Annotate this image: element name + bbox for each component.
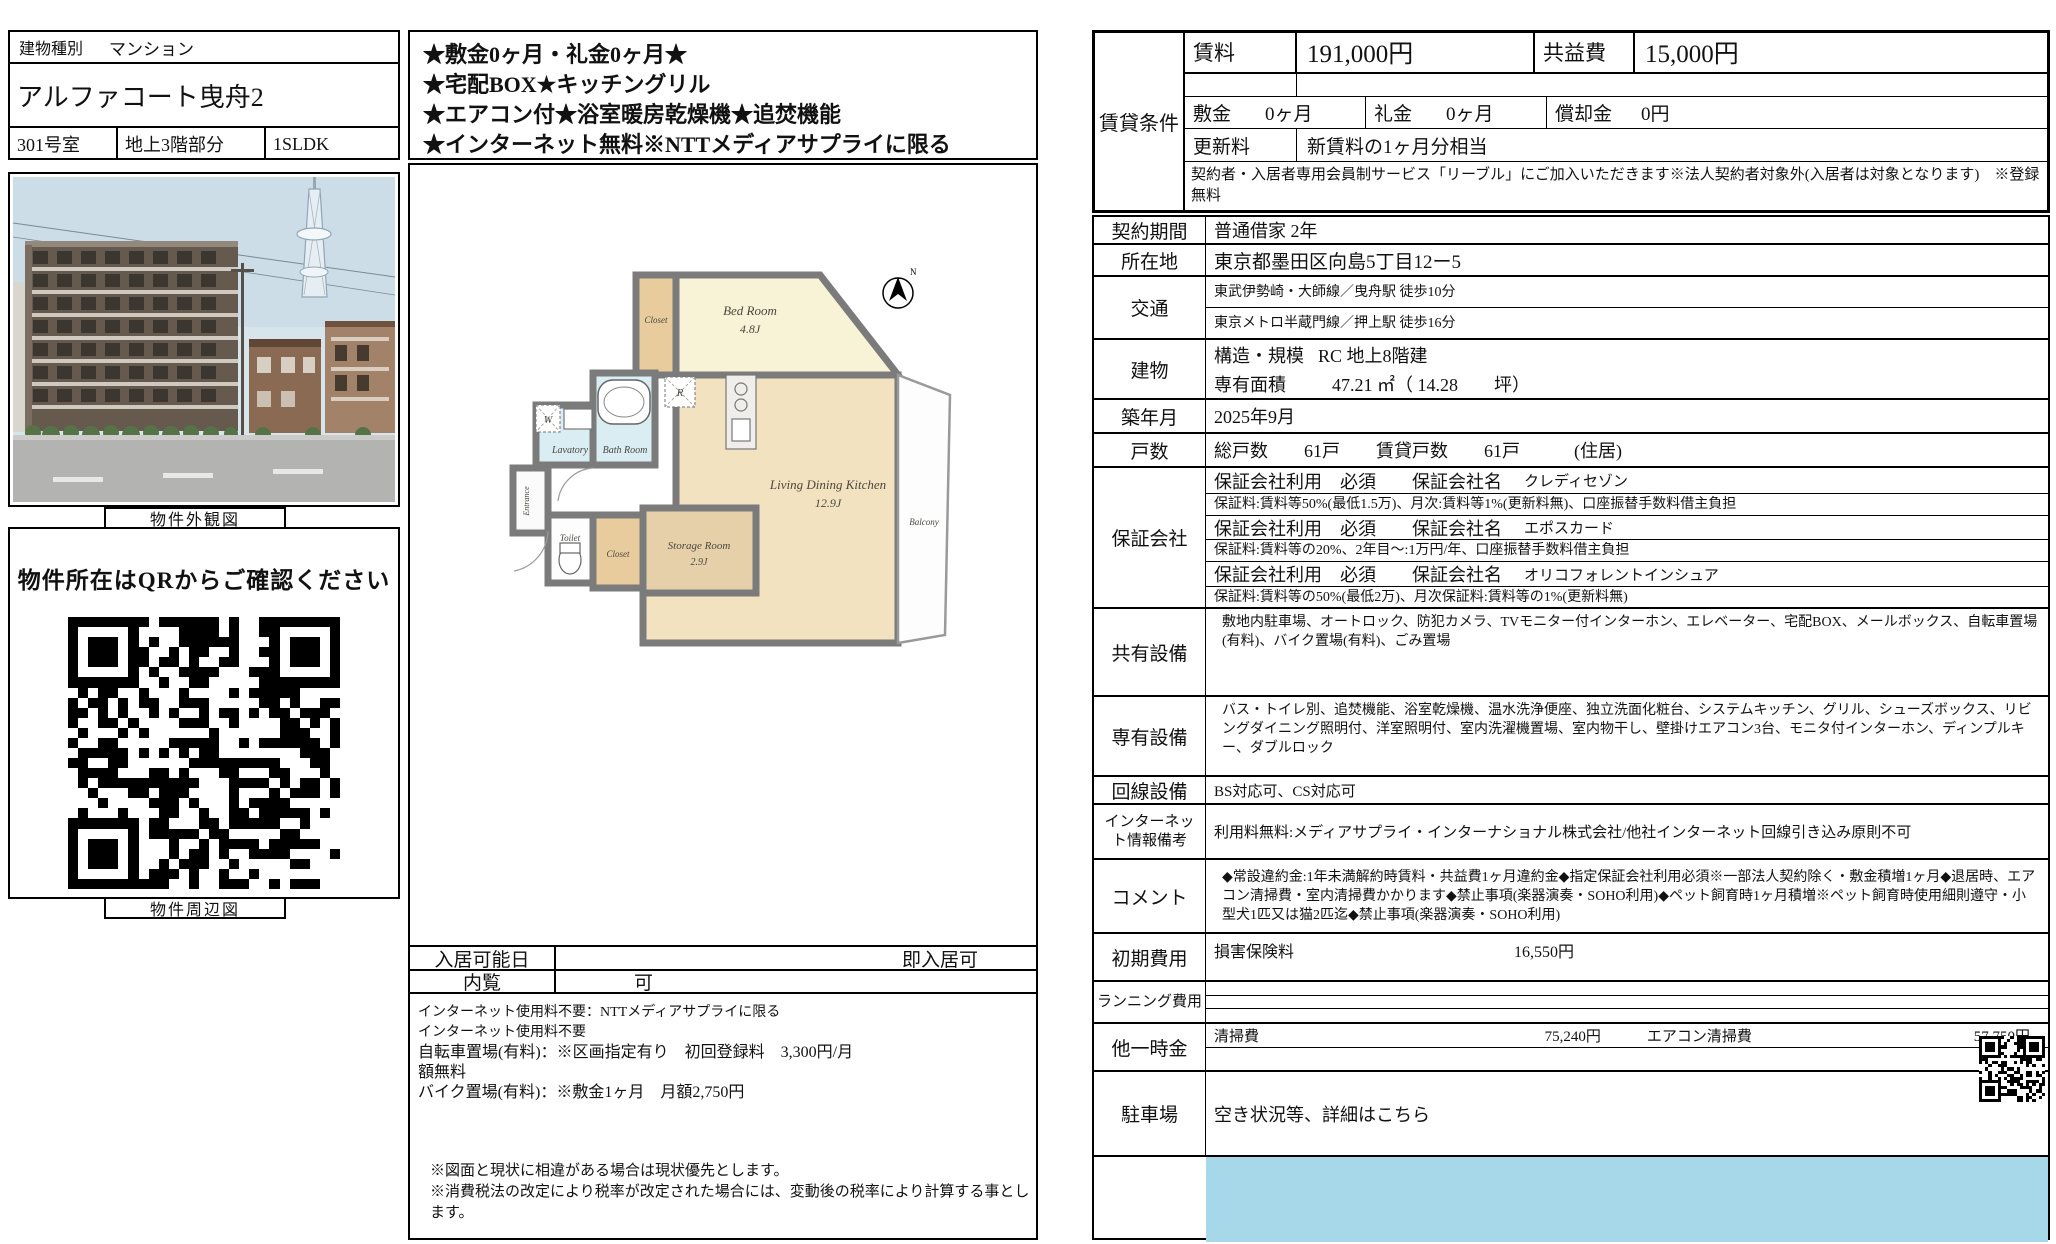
contract-label: 契約期間 — [1094, 217, 1206, 243]
closet1-label: Closet — [644, 315, 668, 325]
layout-type: 1SLDK — [266, 128, 398, 160]
bedroom-label: Bed Room — [723, 303, 777, 318]
initial-cost-item: 損害保険料 — [1214, 938, 1514, 962]
north-arrow-icon: N — [883, 267, 917, 308]
common-facilities-row: 共有設備 敷地内駐車場、オートロック、防犯カメラ、TVモニター付インターホン、エ… — [1094, 609, 2048, 697]
qr-map-box: 物件所在はQRからご確認ください — [8, 527, 400, 899]
internet-label: インターネット情報備考 — [1094, 805, 1206, 858]
move-in-label: 入居可能日 — [410, 947, 556, 969]
storage-size: 2.9J — [691, 557, 709, 568]
guarantor-row: 保証会社 保証会社利用 必須 保証会社名 クレディセゾン 保証料:賃料等50%(… — [1094, 468, 2048, 609]
room-number: 301号室 — [10, 128, 118, 160]
renewal-label: 更新料 — [1185, 129, 1297, 161]
exterior-photo-frame — [8, 172, 400, 507]
internet-row: インターネット情報備考 利用料無料:メディアサプライ・インターナショナル株式会社… — [1094, 805, 2048, 860]
initial-cost-row: 初期費用 損害保険料 16,550円 — [1094, 934, 2048, 982]
guarantor-detail: 保証料:賃料等の50%(最低2万)、月次保証料:賃料等の1%(更新料無) — [1206, 587, 2048, 607]
rent-conditions-box: 賃貸条件 賃料 191,000円 共益費 15,000円 敷金 0ヶ月 礼金 0… — [1092, 30, 2050, 213]
initial-cost-value: 16,550円 — [1514, 938, 1574, 962]
fridge-label: R — [676, 387, 684, 399]
key-money-label: 礼金 — [1374, 99, 1446, 126]
highlight-line: ★宅配BOX★キッチングリル — [423, 70, 1036, 100]
access-row: 交通 東武伊勢崎・大師線／曳舟駅 徒歩10分 東京メトロ半蔵門線／押上駅 徒歩1… — [1094, 277, 2048, 340]
units-value: 総戸数 61戸 賃貸戸数 61戸 (住居) — [1206, 434, 2048, 466]
other-cost-row: 他一時金 清掃費 75,240円 エアコン清掃費 57,750円 — [1094, 1024, 2048, 1072]
access-label: 交通 — [1094, 277, 1206, 338]
unit-info-row: 301号室 地上3階部分 1SLDK — [10, 128, 398, 160]
rent-row: 賃料 191,000円 共益費 15,000円 — [1185, 33, 2047, 74]
access-line: 東武伊勢崎・大師線／曳舟駅 徒歩10分 — [1206, 277, 2048, 308]
address-row: 所在地 東京都墨田区向島5丁目12ー5 — [1094, 245, 2048, 277]
deposit-value: 0ヶ月 — [1265, 99, 1313, 126]
building-row: 建物 構造・規模 RC 地上8階建 専有面積 47.21 ㎡（ 14.28 坪） — [1094, 340, 2048, 400]
building-type-value: マンション — [109, 35, 194, 60]
bottom-bar-label — [1094, 1157, 1206, 1242]
contract-value: 普通借家 2年 — [1206, 217, 2048, 243]
bathroom-label: Bath Room — [603, 445, 648, 456]
entrance-label: Entrance — [522, 486, 531, 517]
other-cost-item1: 清掃費 — [1214, 1025, 1259, 1046]
spacer-row — [1185, 74, 2047, 97]
parking-label: 駐車場 — [1094, 1072, 1206, 1155]
area-value: 47.21 ㎡（ 14.28 坪） — [1332, 371, 1530, 397]
rent-section-label: 賃貸条件 — [1095, 33, 1185, 210]
line-facilities-label: 回線設備 — [1094, 777, 1206, 803]
comment-label: コメント — [1094, 860, 1206, 932]
common-facilities-value: 敷地内駐車場、オートロック、防犯カメラ、TVモニター付インターホン、エレベーター… — [1214, 609, 2048, 651]
guarantor-detail: 保証料:賃料等50%(最低1.5万)、月次:賃料等1%(更新料無)、口座振替手数… — [1206, 494, 2048, 516]
viewing-label: 内覧 — [410, 971, 556, 992]
details-table: 契約期間 普通借家 2年 所在地 東京都墨田区向島5丁目12ー5 交通 東武伊勢… — [1092, 215, 2050, 1240]
closet2-label: Closet — [606, 549, 630, 559]
property-sheet: 建物種別 マンション アルファコート曳舟2 301号室 地上3階部分 1SLDK — [0, 0, 2056, 1244]
common-facilities-label: 共有設備 — [1094, 609, 1206, 695]
floorplan-box: N Closet Bed Room 4.8J W R Lavatory Bath… — [408, 163, 1038, 1240]
floorplan: N Closet Bed Room 4.8J W R Lavatory Bath… — [498, 263, 978, 703]
deposit-label: 敷金 — [1193, 99, 1265, 126]
deposit-row: 敷金 0ヶ月 礼金 0ヶ月 償却金 0円 — [1185, 97, 2047, 130]
other-cost-item2: エアコン清掃費 — [1647, 1025, 1752, 1046]
building-label: 建物 — [1094, 340, 1206, 398]
building-header: 建物種別 マンション アルファコート曳舟2 301号室 地上3階部分 1SLDK — [8, 30, 400, 160]
building-name: アルファコート曳舟2 — [10, 64, 398, 128]
balcony-label: Balcony — [909, 517, 939, 527]
photo-caption: 物件外観図 — [104, 507, 286, 529]
key-money-value: 0ヶ月 — [1446, 99, 1494, 126]
building-type-label: 建物種別 — [19, 35, 83, 59]
guarantor-head: 保証会社利用 必須 保証会社名 — [1214, 561, 1502, 587]
units-row: 戸数 総戸数 61戸 賃貸戸数 61戸 (住居) — [1094, 434, 2048, 468]
private-facilities-value: バス・トイレ別、追焚機能、浴室乾燥機、温水洗浄便座、独立洗面化粧台、システムキッ… — [1214, 697, 2048, 758]
guarantor-name: オリコフォレントインシュア — [1524, 564, 1719, 585]
balcony-outline — [898, 375, 950, 643]
access-line: 東京メトロ半蔵門線／押上駅 徒歩16分 — [1206, 308, 2048, 338]
guarantor-head: 保証会社利用 必須 保証会社名 — [1214, 515, 1502, 541]
guarantor-label: 保証会社 — [1094, 468, 1206, 607]
exterior-photo — [13, 177, 395, 502]
bedroom-size: 4.8J — [740, 322, 761, 336]
address-value: 東京都墨田区向島5丁目12ー5 — [1206, 245, 2048, 275]
private-facilities-label: 専有設備 — [1094, 697, 1206, 775]
private-facilities-row: 専有設備 バス・トイレ別、追焚機能、浴室乾燥機、温水洗浄便座、独立洗面化粧台、シ… — [1094, 697, 2048, 777]
renewal-row: 更新料 新賃料の1ヶ月分相当 — [1185, 129, 2047, 162]
footer-note-line: ※図面と現状に相違がある場合は現状優先とします。 — [430, 1161, 1036, 1182]
address-label: 所在地 — [1094, 245, 1206, 275]
viewing-row: 内覧 可 — [410, 969, 1036, 994]
units-label: 戸数 — [1094, 434, 1206, 466]
facility-notes: インターネット使用料不要：NTTメディアサプライに限る インターネット使用料不要… — [418, 1003, 1028, 1103]
running-cost-label: ランニング費用 — [1094, 982, 1206, 1022]
highlight-line: ★敷金0ヶ月・礼金0ヶ月★ — [423, 40, 1036, 70]
parking-value: 空き状況等、詳細はこちら — [1206, 1072, 2048, 1155]
rent-value: 191,000円 — [1297, 33, 1535, 72]
bottom-bar-row — [1094, 1157, 2048, 1242]
ldk-label: Living Dining Kitchen — [769, 477, 886, 492]
guarantor-name: クレディセゾン — [1524, 470, 1628, 491]
common-fee-value: 15,000円 — [1635, 33, 2047, 72]
line-facilities-row: 回線設備 BS対応可、CS対応可 — [1094, 777, 2048, 805]
highlight-line: ★インターネット無料※NTTメディアサプライに限る — [423, 130, 1036, 160]
map-qr-code — [68, 617, 340, 889]
built-label: 築年月 — [1094, 400, 1206, 432]
viewing-value: 可 — [556, 971, 1036, 992]
rent-label: 賃料 — [1185, 33, 1297, 72]
toilet-label: Toilet — [560, 533, 581, 543]
contract-row: 契約期間 普通借家 2年 — [1094, 217, 2048, 245]
initial-cost-label: 初期費用 — [1094, 934, 1206, 980]
comment-value: ◆常設違約金:1年未満解約時賃料・共益費1ヶ月違約金◆指定保証会社利用必須※一部… — [1214, 868, 2048, 925]
parking-row: 駐車場 空き状況等、詳細はこちら — [1094, 1072, 2048, 1157]
apartment-building — [25, 241, 238, 431]
note-line: 自転車置場(有料)：※区画指定有り 初回登録料 3,300円/月 — [418, 1043, 1028, 1063]
qr-heading: 物件所在はQRからご確認ください — [10, 561, 398, 595]
note-line: 額無料 — [418, 1063, 1028, 1083]
membership-note: 契約者・入居者専用会員制サービス「リーブル」にご加入いただきます※法人契約者対象… — [1185, 162, 2047, 210]
bottom-highlight-bar — [1206, 1157, 2048, 1242]
built-value: 2025年9月 — [1206, 400, 2048, 432]
internet-value: 利用料無料:メディアサプライ・インターナショナル株式会社/他社インターネット回線… — [1206, 805, 2048, 858]
running-cost-row: ランニング費用 — [1094, 982, 2048, 1024]
structure-label: 構造・規模 — [1214, 342, 1304, 368]
footer-note-line: ※消費税法の改定により税率が改定された場合には、変動後の税率により計算する事とし… — [430, 1182, 1036, 1224]
guarantor-detail: 保証料:賃料等の20%、2年目～:1万円/年、口座振替手数料借主負担 — [1206, 540, 2048, 562]
note-line: インターネット使用料不要 — [418, 1023, 1028, 1043]
structure-value: RC 地上8階建 — [1318, 342, 1428, 368]
guarantor-name: エポスカード — [1524, 517, 1614, 538]
building-type-row: 建物種別 マンション — [10, 32, 398, 64]
floor-part: 地上3階部分 — [118, 128, 266, 160]
svg-text:N: N — [910, 267, 917, 277]
map-caption: 物件周辺図 — [104, 897, 286, 919]
highlight-line: ★エアコン付★浴室暖房乾燥機★追焚機能 — [423, 100, 1036, 130]
guarantor-head: 保証会社利用 必須 保証会社名 — [1214, 468, 1502, 494]
storage-label: Storage Room — [668, 540, 731, 552]
other-cost-value1: 75,240円 — [1481, 1025, 1601, 1046]
lavatory-label: Lavatory — [551, 445, 589, 456]
line-facilities-value: BS対応可、CS対応可 — [1206, 777, 2048, 803]
highlights-box: ★敷金0ヶ月・礼金0ヶ月★ ★宅配BOX★キッチングリル ★エアコン付★浴室暖房… — [408, 30, 1038, 160]
note-line: バイク置場(有料)：※敷金1ヶ月 月額2,750円 — [418, 1083, 1028, 1103]
note-line: インターネット使用料不要：NTTメディアサプライに限る — [418, 1003, 1028, 1023]
renewal-value: 新賃料の1ヶ月分相当 — [1297, 129, 1488, 161]
footer-notes: ※図面と現状に相違がある場合は現状優先とします。 ※消費税法の改定により税率が改… — [430, 1161, 1036, 1224]
other-cost-label: 他一時金 — [1094, 1024, 1206, 1070]
move-in-value: 即入居可 — [556, 947, 1036, 969]
area-label: 専有面積 — [1214, 371, 1286, 397]
move-in-row: 入居可能日 即入居可 — [410, 945, 1036, 969]
ldk-size: 12.9J — [815, 496, 842, 510]
amortization-label: 償却金 — [1555, 99, 1641, 126]
built-row: 築年月 2025年9月 — [1094, 400, 2048, 434]
comment-row: コメント ◆常設違約金:1年未満解約時賃料・共益費1ヶ月違約金◆指定保証会社利用… — [1094, 860, 2048, 934]
common-fee-label: 共益費 — [1535, 33, 1635, 72]
amortization-value: 0円 — [1641, 99, 1670, 126]
parking-qr-code — [1979, 1036, 2045, 1102]
